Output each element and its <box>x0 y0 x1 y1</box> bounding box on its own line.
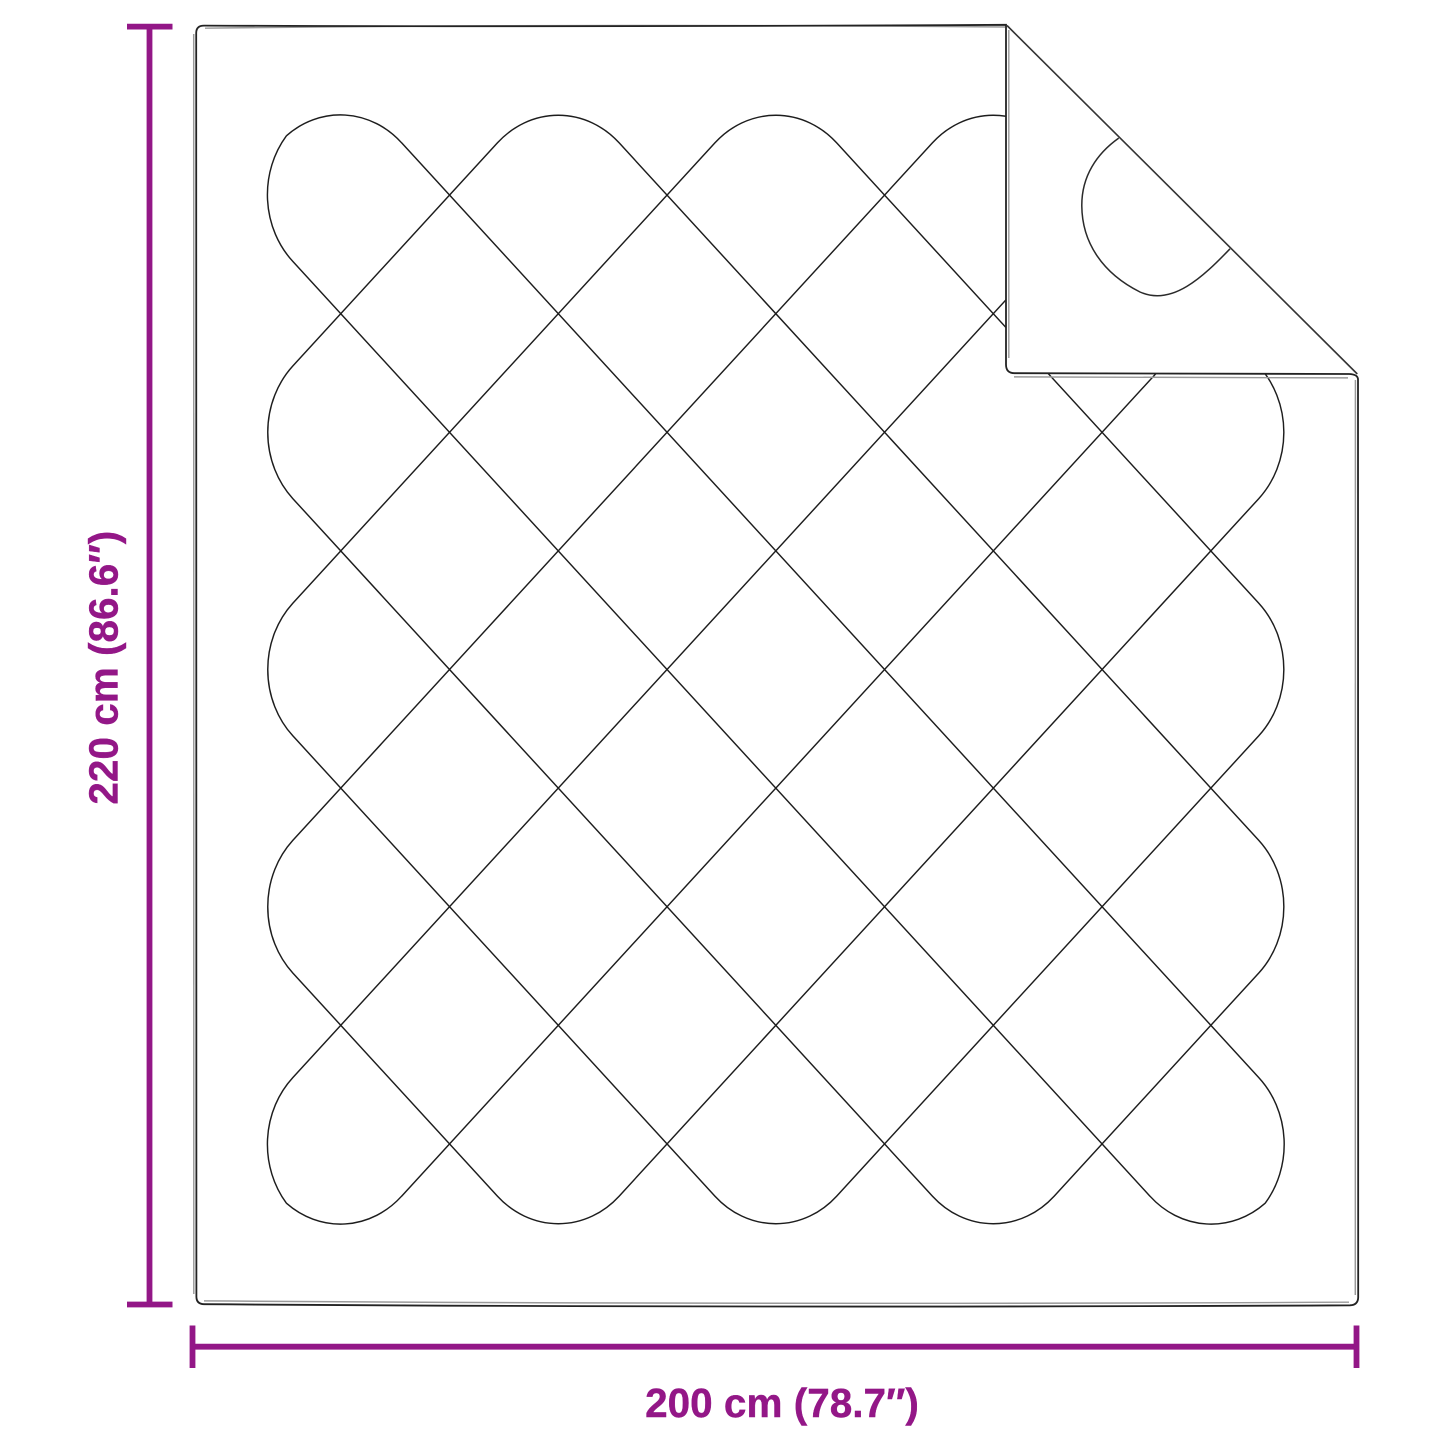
svg-text:220 cm (86.6″): 220 cm (86.6″) <box>81 531 127 805</box>
svg-text:200 cm (78.7″): 200 cm (78.7″) <box>645 1380 919 1426</box>
